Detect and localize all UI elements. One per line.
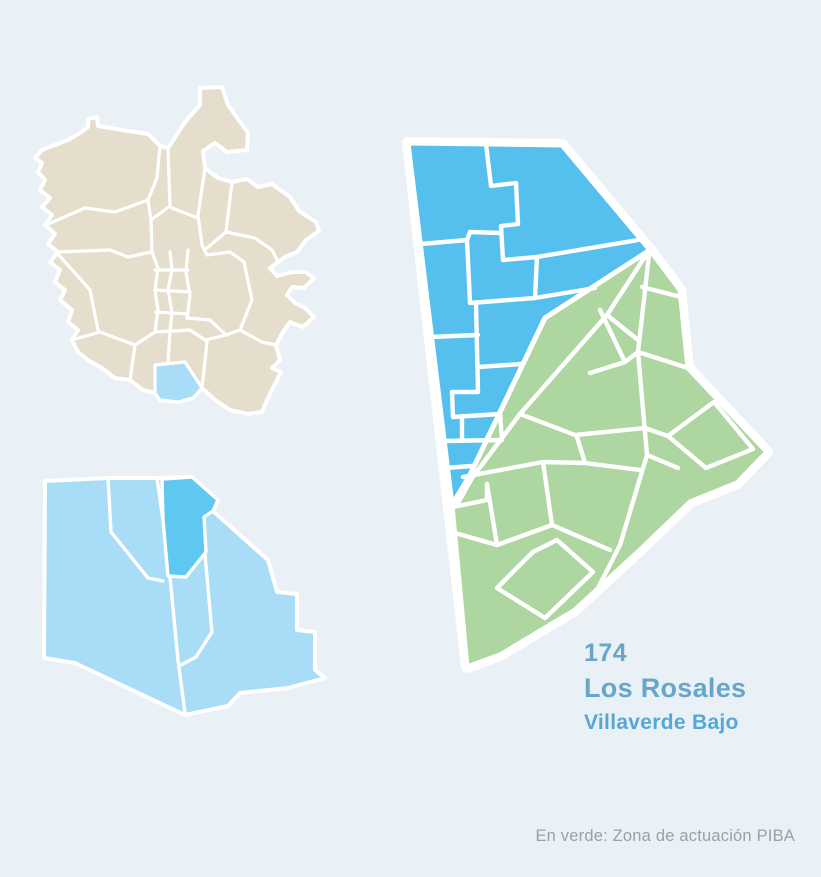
district-name: Villaverde Bajo	[584, 712, 746, 733]
villaverde-neighbourhoods-map	[44, 477, 325, 715]
los-rosales-detail-map	[408, 143, 767, 667]
maps-canvas	[0, 0, 821, 877]
area-code: 174	[584, 641, 746, 666]
piba-zone-infographic: 174 Los Rosales Villaverde Bajo En verde…	[0, 0, 821, 877]
area-label-block: 174 Los Rosales Villaverde Bajo	[584, 641, 746, 733]
madrid-districts-map	[35, 87, 319, 414]
area-name: Los Rosales	[584, 675, 746, 702]
legend-note: En verde: Zona de actuación PIBA	[535, 827, 795, 846]
